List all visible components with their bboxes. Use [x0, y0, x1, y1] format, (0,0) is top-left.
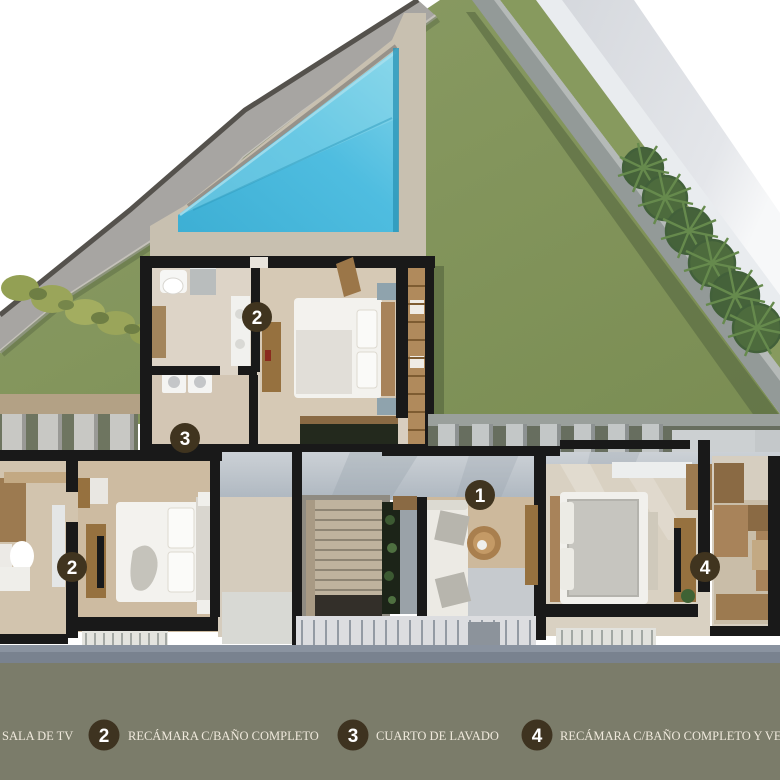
- svg-text:RECÁMARA C/BAÑO COMPLETO: RECÁMARA C/BAÑO COMPLETO: [128, 729, 319, 743]
- svg-text:3: 3: [180, 429, 191, 450]
- svg-text:2: 2: [67, 558, 78, 579]
- svg-text:CUARTO DE LAVADO: CUARTO DE LAVADO: [376, 729, 499, 743]
- svg-text:2: 2: [99, 726, 110, 747]
- svg-text:RECÁMARA C/BAÑO COMPLETO Y VES: RECÁMARA C/BAÑO COMPLETO Y VESTIDOR: [560, 729, 780, 743]
- svg-text:4: 4: [532, 726, 543, 747]
- svg-text:2: 2: [252, 308, 263, 329]
- svg-text:3: 3: [348, 726, 359, 747]
- svg-text:4: 4: [700, 558, 711, 579]
- svg-text:1: 1: [475, 486, 486, 507]
- svg-text:SALA DE TV: SALA DE TV: [2, 729, 73, 743]
